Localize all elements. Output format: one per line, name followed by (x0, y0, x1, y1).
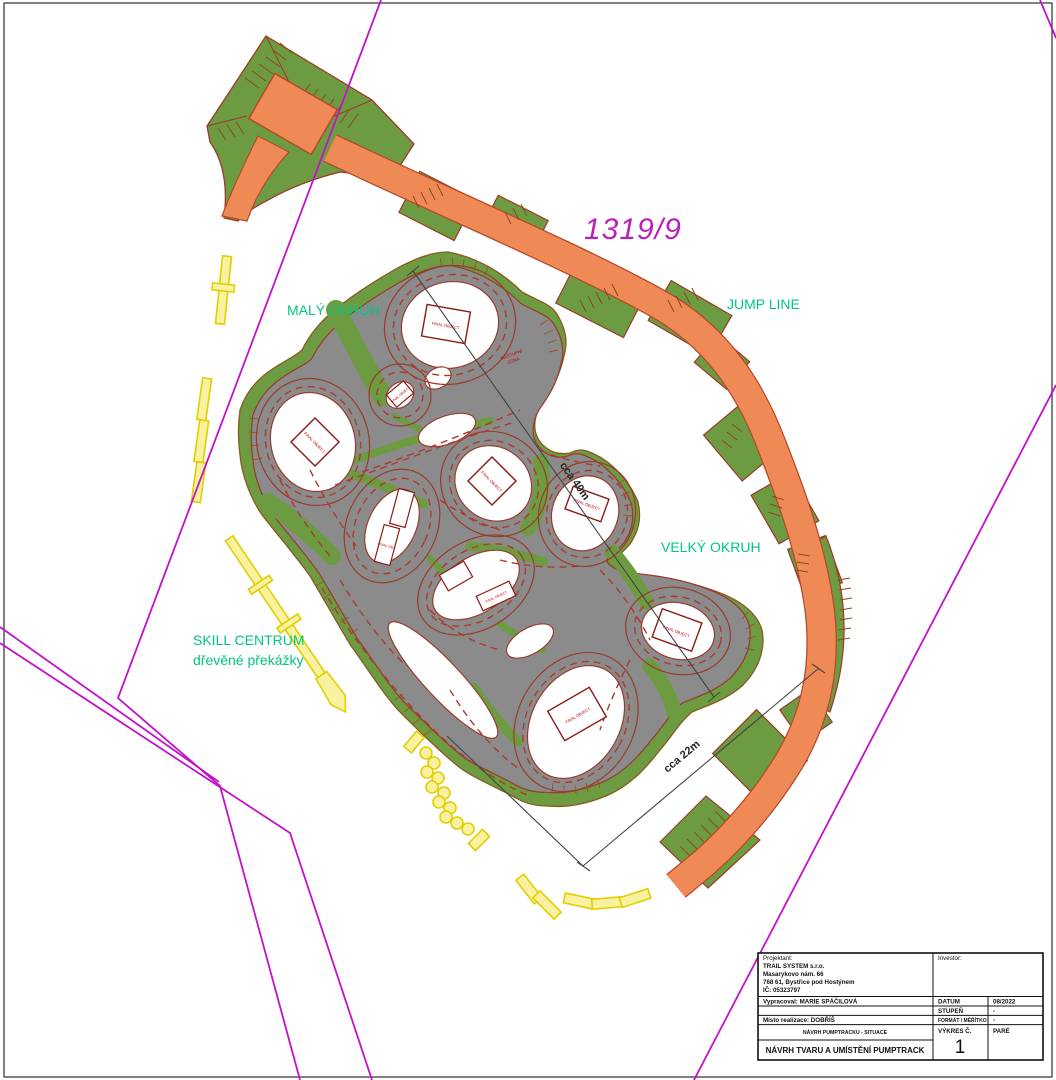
svg-text:DATUM: DATUM (938, 999, 960, 1006)
svg-text:08/2022: 08/2022 (993, 999, 1016, 1006)
svg-text:Investor:: Investor: (938, 955, 962, 962)
svg-text:VELKÝ OKRUH: VELKÝ OKRUH (661, 539, 761, 555)
svg-text:1319/9: 1319/9 (584, 213, 682, 246)
svg-text:SKILL CENTRUM: SKILL CENTRUM (193, 632, 305, 648)
svg-text:dřevěné překážky: dřevěné překážky (193, 652, 304, 668)
svg-text:1: 1 (955, 1037, 966, 1058)
svg-text:NÁVRH PUMPTRACKU - SITUACE: NÁVRH PUMPTRACKU - SITUACE (803, 1029, 888, 1036)
svg-text:768 61, Bystřice pod Hostýnem: 768 61, Bystřice pod Hostýnem (763, 979, 855, 986)
svg-text:Místo realizace: DOBŘÍŠ: Místo realizace: DOBŘÍŠ (763, 1016, 835, 1024)
svg-text:MALÝ OKRUH: MALÝ OKRUH (287, 302, 380, 318)
svg-text:PARÉ: PARÉ (993, 1027, 1010, 1035)
svg-text:Vypracoval: MARIE SPÁČILOVÁ: Vypracoval: MARIE SPÁČILOVÁ (763, 999, 858, 1006)
svg-text:JUMP LINE: JUMP LINE (727, 296, 800, 312)
svg-text:STUPEŇ: STUPEŇ (938, 1007, 964, 1015)
svg-text:Projektant:: Projektant: (763, 955, 793, 962)
svg-text:Masarykovo nám. 66: Masarykovo nám. 66 (763, 971, 824, 978)
svg-text:IČ: 05323797: IČ: 05323797 (763, 987, 801, 994)
svg-text:VÝKRES Č.: VÝKRES Č. (938, 1028, 972, 1035)
svg-text:FORMÁT / MĚŘÍTKO: FORMÁT / MĚŘÍTKO (938, 1016, 987, 1024)
svg-text:-: - (993, 1008, 995, 1015)
svg-text:NÁVRH TVARU A UMÍSTĚNÍ PUMPTRA: NÁVRH TVARU A UMÍSTĚNÍ PUMPTRACK (766, 1046, 925, 1055)
svg-text:-: - (993, 1017, 995, 1024)
svg-text:TRAIL SYSTEM s.r.o.: TRAIL SYSTEM s.r.o. (763, 963, 825, 970)
